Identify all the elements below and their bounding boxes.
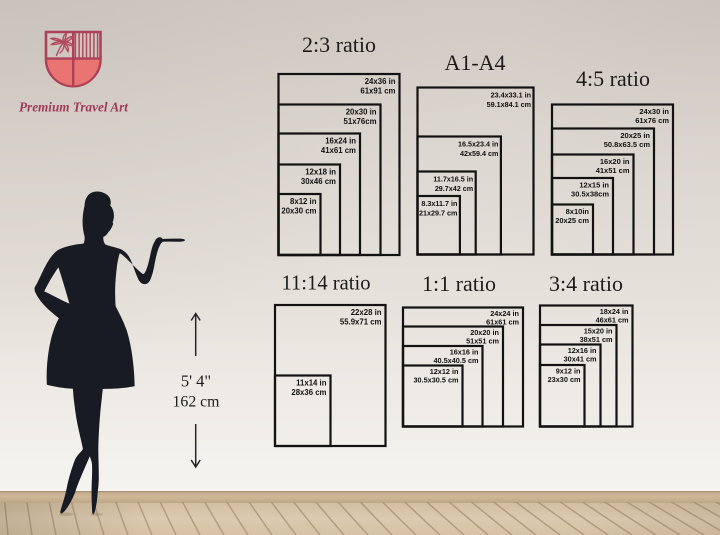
svg-text:16x20 in: 16x20 in xyxy=(600,157,630,166)
svg-text:11.7x16.5 in: 11.7x16.5 in xyxy=(433,175,473,184)
svg-text:61x91 cm: 61x91 cm xyxy=(360,87,395,96)
svg-text:61x61 cm: 61x61 cm xyxy=(486,317,519,326)
svg-text:42x59.4 cm: 42x59.4 cm xyxy=(460,149,498,158)
svg-text:59.1x84.1 cm: 59.1x84.1 cm xyxy=(487,100,531,109)
svg-text:8.3x11.7 in: 8.3x11.7 in xyxy=(421,199,457,208)
svg-text:A1-A4: A1-A4 xyxy=(444,50,505,75)
svg-text:50.8x63.5 cm: 50.8x63.5 cm xyxy=(604,140,651,149)
svg-text:5' 4": 5' 4" xyxy=(181,372,211,391)
svg-text:20x25 in: 20x25 in xyxy=(620,131,650,140)
svg-text:8x10in: 8x10in xyxy=(566,207,590,216)
svg-text:28x36 cm: 28x36 cm xyxy=(291,388,326,397)
svg-text:46x61 cm: 46x61 cm xyxy=(596,315,629,324)
svg-text:11x14 in: 11x14 in xyxy=(296,379,327,388)
svg-text:29.7x42 cm: 29.7x42 cm xyxy=(435,184,473,193)
svg-text:51x51 cm: 51x51 cm xyxy=(466,336,499,345)
svg-text:55.9x71 cm: 55.9x71 cm xyxy=(340,318,382,327)
svg-text:162 cm: 162 cm xyxy=(173,394,221,411)
svg-text:22x28 in: 22x28 in xyxy=(351,308,382,317)
svg-text:20x30 in: 20x30 in xyxy=(346,108,377,117)
svg-text:8x12 in: 8x12 in xyxy=(290,197,317,206)
svg-text:Premium Travel Art: Premium Travel Art xyxy=(19,100,128,115)
svg-text:20x25 cm: 20x25 cm xyxy=(555,216,589,225)
svg-text:30.5x38cm: 30.5x38cm xyxy=(571,189,609,198)
svg-text:1:1 ratio: 1:1 ratio xyxy=(422,271,496,296)
svg-text:12x15 in: 12x15 in xyxy=(579,180,609,189)
svg-text:61x76 cm: 61x76 cm xyxy=(635,116,669,125)
svg-text:40.5x40.5 cm: 40.5x40.5 cm xyxy=(433,356,479,365)
svg-text:38x51 cm: 38x51 cm xyxy=(580,335,613,344)
svg-text:12x18 in: 12x18 in xyxy=(305,168,336,177)
svg-text:30x41 cm: 30x41 cm xyxy=(564,354,597,363)
svg-text:24x30 in: 24x30 in xyxy=(639,107,669,116)
svg-text:51x76cm: 51x76cm xyxy=(344,117,377,126)
svg-text:2:3 ratio: 2:3 ratio xyxy=(302,32,376,57)
svg-text:30.5x30.5 cm: 30.5x30.5 cm xyxy=(413,375,459,384)
svg-text:41x51 cm: 41x51 cm xyxy=(596,166,630,175)
svg-text:20x30 cm: 20x30 cm xyxy=(281,207,316,216)
svg-text:24x36 in: 24x36 in xyxy=(365,77,396,86)
svg-text:23.4x33.1 in: 23.4x33.1 in xyxy=(491,91,531,100)
svg-text:11:14 ratio: 11:14 ratio xyxy=(281,273,370,295)
svg-text:41x61 cm: 41x61 cm xyxy=(321,146,356,155)
svg-text:30x46 cm: 30x46 cm xyxy=(301,177,336,186)
svg-text:16.5x23.4 in: 16.5x23.4 in xyxy=(458,140,498,149)
svg-text:16x24 in: 16x24 in xyxy=(325,137,356,146)
svg-text:3:4 ratio: 3:4 ratio xyxy=(549,271,623,296)
svg-text:4:5 ratio: 4:5 ratio xyxy=(576,66,650,91)
svg-text:23x30 cm: 23x30 cm xyxy=(548,375,581,384)
svg-text:21x29.7 cm: 21x29.7 cm xyxy=(419,209,457,218)
